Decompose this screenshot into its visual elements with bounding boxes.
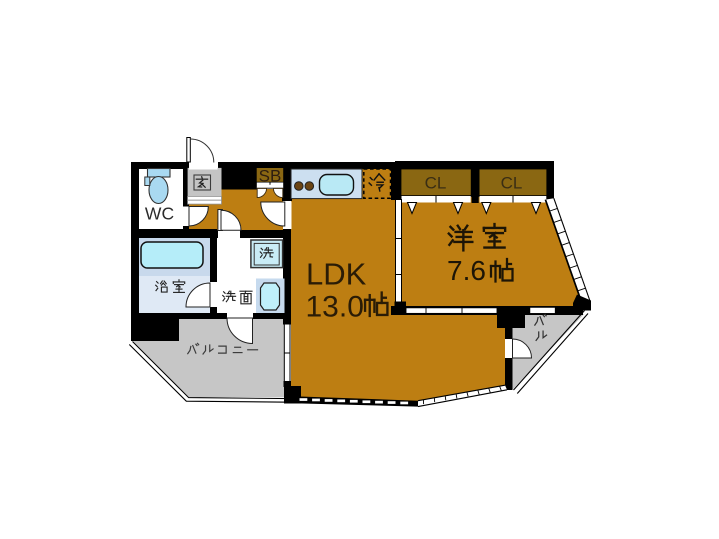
svg-text:LDK: LDK (306, 257, 367, 292)
svg-text:CL: CL (501, 174, 523, 193)
svg-text:13.0: 13.0 (306, 291, 364, 324)
svg-text:WC: WC (145, 204, 174, 224)
svg-text:7.6: 7.6 (447, 255, 486, 286)
svg-text:CL: CL (425, 174, 447, 193)
